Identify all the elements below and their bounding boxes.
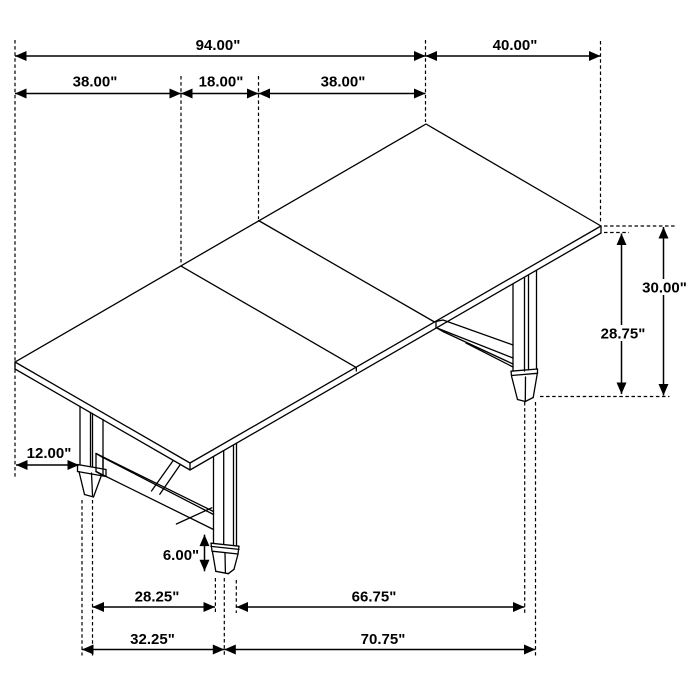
svg-text:38.00": 38.00" <box>73 74 118 91</box>
svg-text:18.00": 18.00" <box>199 74 244 91</box>
svg-text:30.00": 30.00" <box>642 280 687 297</box>
svg-text:32.25": 32.25" <box>130 631 175 648</box>
svg-text:40.00": 40.00" <box>493 37 538 54</box>
svg-text:28.75": 28.75" <box>601 326 646 343</box>
svg-text:38.00": 38.00" <box>321 74 366 91</box>
svg-text:70.75": 70.75" <box>361 631 406 648</box>
svg-text:12.00": 12.00" <box>27 445 72 462</box>
svg-text:6.00": 6.00" <box>163 547 199 564</box>
svg-text:66.75": 66.75" <box>352 589 397 606</box>
svg-text:28.25": 28.25" <box>135 589 180 606</box>
svg-text:94.00": 94.00" <box>196 37 241 54</box>
